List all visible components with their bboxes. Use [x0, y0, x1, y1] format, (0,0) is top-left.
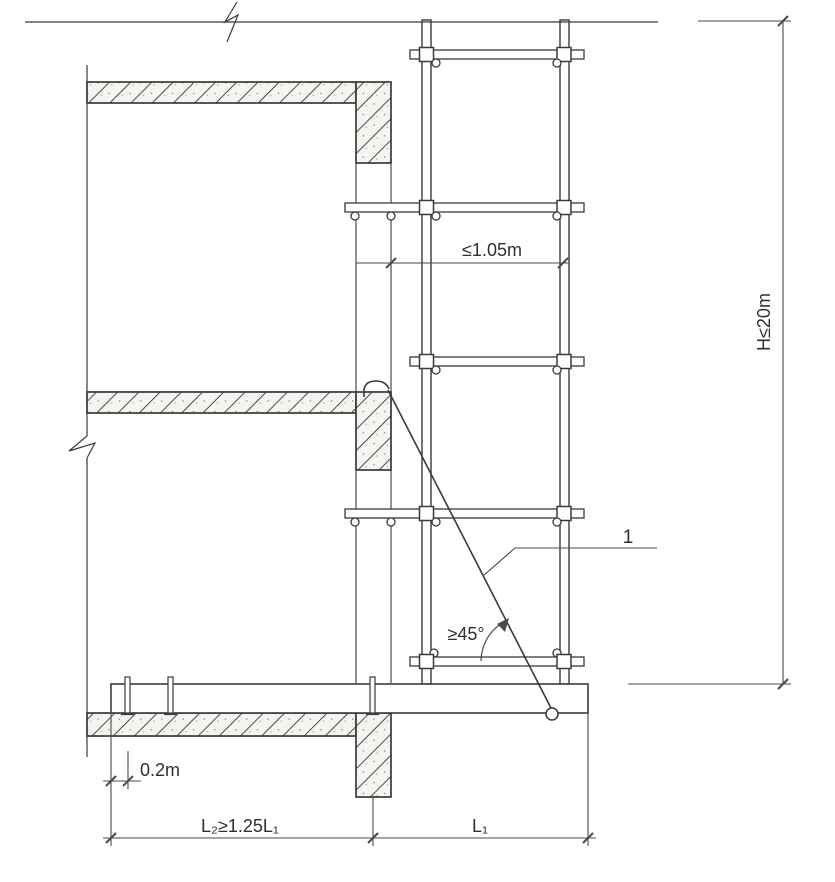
cantilever-beam-assembly	[111, 677, 588, 715]
coupler	[432, 366, 440, 374]
coupler	[553, 59, 561, 67]
bottom-edge-beam	[356, 713, 391, 797]
angle-arrowhead	[497, 618, 509, 632]
dim-label-gap: ≤1.05m	[462, 240, 522, 260]
coupler	[432, 518, 440, 526]
bottom-floor-slab	[87, 713, 356, 736]
dim-scaffold-gap: ≤1.05m	[356, 240, 569, 268]
scaffold	[25, 2, 658, 684]
dim-label-height: H≤20m	[754, 293, 774, 351]
ledger-level-2-wall-tie	[345, 201, 584, 221]
coupler	[553, 212, 561, 220]
beam-end-ring	[546, 708, 558, 720]
dim-label-anchorage: L₂≥1.25L₁	[201, 816, 279, 836]
ledger-level-4-wall-tie	[345, 507, 584, 527]
coupler	[387, 212, 395, 220]
cantilever-scaffold-detail-page: ≤1.05m H≤20m 1 ≥45° 0	[0, 0, 835, 882]
top-floor-slab	[87, 82, 356, 103]
scaffold-post-outer	[560, 20, 569, 684]
joint-block	[420, 355, 434, 369]
joint-block	[557, 655, 571, 669]
dim-label-offset: 0.2m	[140, 760, 180, 780]
coupler	[432, 212, 440, 220]
leader-brace-ref: 1	[483, 527, 657, 576]
ledger-level-1	[410, 48, 584, 68]
middle-edge-beam	[356, 392, 391, 470]
scaffold-post-inner	[422, 20, 431, 684]
wall-break-mark	[69, 436, 95, 458]
wire-rope-brace	[364, 381, 558, 720]
ledger-level-5	[410, 649, 584, 669]
tie-tube	[345, 509, 584, 518]
coupler	[432, 59, 440, 67]
middle-floor-slab	[87, 392, 356, 413]
top-edge-beam	[356, 82, 391, 163]
cantilever-i-beam	[111, 684, 588, 713]
brace-ref-label: 1	[623, 527, 634, 548]
ledger-level-3	[410, 355, 584, 375]
joint-block	[420, 655, 434, 669]
angle-label: ≥45°	[447, 624, 484, 644]
tie-tube	[345, 203, 584, 212]
cantilever-scaffold-drawing: ≤1.05m H≤20m 1 ≥45° 0	[0, 0, 835, 882]
coupler	[553, 518, 561, 526]
coupler	[387, 518, 395, 526]
dim-total-height: H≤20m	[628, 16, 791, 689]
joint-block	[420, 48, 434, 62]
joint-block	[420, 201, 434, 215]
coupler	[351, 518, 359, 526]
joint-block	[420, 507, 434, 521]
dim-label-cantilever: L₁	[472, 816, 488, 836]
coupler	[553, 366, 561, 374]
coupler	[351, 212, 359, 220]
angle-annotation: ≥45°	[447, 618, 509, 661]
